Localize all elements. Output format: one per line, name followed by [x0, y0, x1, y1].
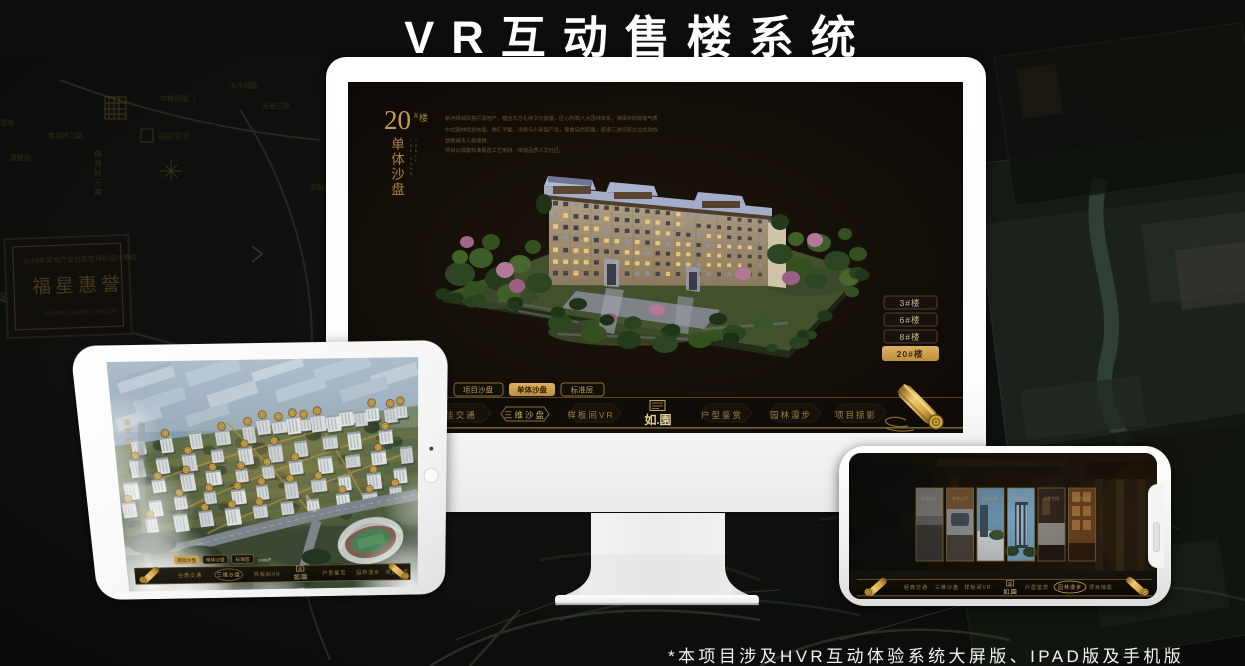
svg-text:项目沙盘: 项目沙盘: [177, 557, 197, 564]
svg-text:园林漫步: 园林漫步: [356, 569, 380, 576]
svg-text:园林漫步: 园林漫步: [1058, 584, 1082, 591]
svg-text:单体沙盘: 单体沙盘: [517, 385, 547, 395]
svg-text:中式园林规划布局，融汇平墅、洋房与小高层产品，尊重自然肌理，: 中式园林规划布局，融汇平墅、洋房与小高层产品，尊重自然肌理，营造三进归家之仪式动…: [445, 126, 658, 134]
svg-text:楼体鉴赏: 楼体鉴赏: [1013, 495, 1029, 501]
svg-text:佛祖岭二路: 佛祖岭二路: [48, 131, 83, 140]
svg-text:经典交通: 经典交通: [178, 572, 202, 579]
svg-text:项目掠影: 项目掠影: [1089, 584, 1113, 591]
svg-text:标准层: 标准层: [571, 385, 594, 395]
svg-text:福星惠誉: 福星惠誉: [158, 131, 190, 141]
svg-text:沙: 沙: [391, 167, 405, 182]
svg-text:户型鉴赏: 户型鉴赏: [701, 410, 743, 420]
svg-text:20: 20: [384, 105, 411, 135]
svg-text:体: 体: [391, 152, 405, 167]
svg-text:样板间VR: 样板间VR: [965, 584, 992, 591]
svg-text:经典交通: 经典交通: [904, 584, 928, 591]
svg-text:园林实景: 园林实景: [982, 495, 998, 501]
svg-text:样板间A: 样板间A: [922, 495, 937, 501]
svg-text:#: #: [414, 111, 418, 120]
svg-text:L: L: [415, 154, 417, 158]
svg-text:楼: 楼: [419, 112, 428, 123]
svg-text:三维沙盘: 三维沙盘: [504, 410, 546, 420]
svg-text:品酒雅室: 品酒雅室: [1074, 495, 1090, 501]
svg-text:20#楼: 20#楼: [897, 349, 924, 359]
svg-text:福地: 福地: [0, 118, 14, 127]
svg-text:车库入户: 车库入户: [952, 495, 968, 501]
svg-text:6#楼: 6#楼: [900, 315, 921, 325]
svg-text:单体沙盘: 单体沙盘: [205, 556, 225, 563]
svg-text:户型鉴赏: 户型鉴赏: [322, 569, 346, 576]
svg-text:样板间VR: 样板间VR: [567, 410, 614, 420]
svg-text:8#楼: 8#楼: [900, 332, 921, 342]
svg-text:福星惠誉: 福星惠誉: [32, 273, 125, 298]
svg-text:園: 園: [298, 566, 302, 571]
svg-text:D: D: [410, 172, 413, 176]
svg-text:盘: 盘: [391, 181, 405, 197]
svg-text:致敬城市人居理想。: 致敬城市人居理想。: [445, 137, 492, 145]
svg-text:单: 单: [391, 137, 405, 152]
svg-text:新河绿城风格打造地产，蕴含东方礼序文化底蕴，匠心构筑八大园林: 新河绿城风格打造地产，蕴含东方礼序文化底蕴，匠心构筑八大园林体系，演绎传统院落气…: [445, 114, 658, 122]
svg-text:康魅路: 康魅路: [10, 153, 31, 162]
svg-text:三维沙盘: 三维沙盘: [217, 571, 241, 578]
svg-text:大学城路: 大学城路: [230, 81, 258, 90]
svg-text:佳交通: 佳交通: [445, 410, 477, 420]
svg-text:中粮福临门: 中粮福临门: [160, 94, 195, 103]
svg-text:佛祖岭三路: 佛祖岭三路: [93, 149, 102, 198]
svg-text:园林漫步: 园林漫步: [770, 410, 812, 420]
svg-text:标准层: 标准层: [235, 556, 250, 563]
svg-text:项目以绿建标准甄选工艺用材，缔造品质人文社区。: 项目以绿建标准甄选工艺用材，缔造品质人文社区。: [445, 146, 564, 154]
svg-text:H: H: [410, 144, 413, 148]
svg-text:N: N: [410, 167, 413, 171]
svg-text:如.園: 如.園: [1003, 588, 1017, 596]
svg-text:園: 園: [1008, 581, 1012, 586]
svg-text:如.園: 如.園: [644, 412, 671, 427]
svg-text:主卧空间: 主卧空间: [1043, 495, 1059, 501]
svg-text:光谷三路: 光谷三路: [262, 101, 290, 110]
svg-text:项目沙盘: 项目沙盘: [463, 385, 493, 395]
svg-text:户型鉴赏: 户型鉴赏: [1025, 584, 1049, 591]
svg-text:3#楼: 3#楼: [900, 298, 921, 308]
svg-text:如.園: 如.園: [294, 573, 308, 581]
svg-text:项目掠影: 项目掠影: [835, 410, 877, 420]
svg-text:三维沙盘: 三维沙盘: [935, 584, 959, 591]
